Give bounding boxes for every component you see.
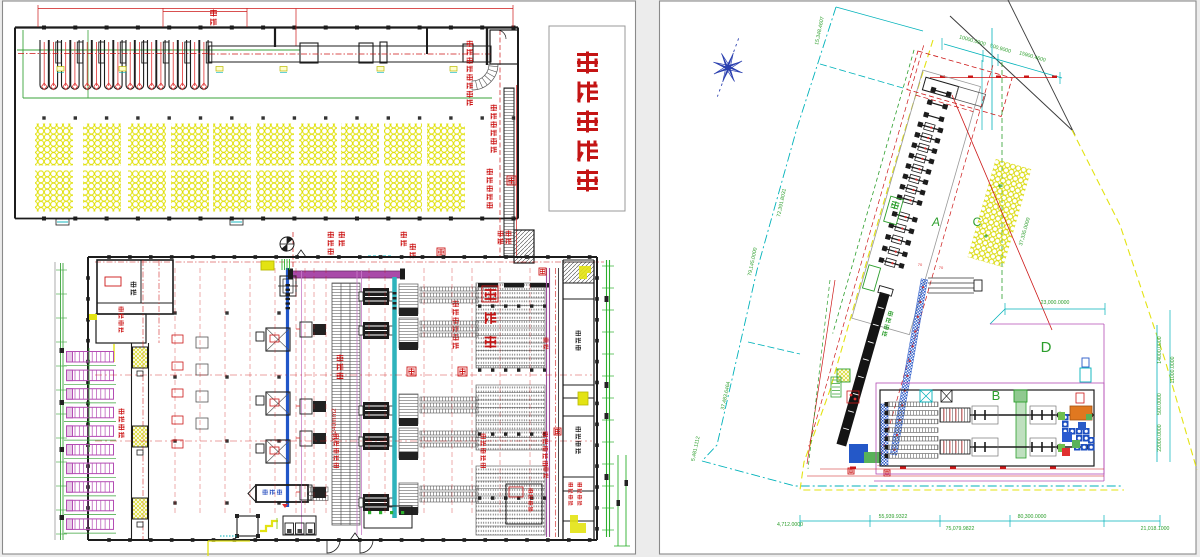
svg-text:70: 70: [939, 265, 944, 270]
svg-text:14000.0000: 14000.0000: [1157, 336, 1163, 364]
svg-text:23,000.0000: 23,000.0000: [1041, 300, 1070, 306]
svg-text:21,018.1000: 21,018.1000: [1141, 526, 1170, 532]
svg-text:80,300.0000: 80,300.0000: [1018, 514, 1047, 520]
svg-text:70: 70: [918, 262, 923, 267]
svg-text:55,939.9322: 55,939.9322: [879, 514, 908, 520]
svg-text:11000.0000: 11000.0000: [1170, 356, 1176, 383]
svg-text:22000.0000: 22000.0000: [1157, 424, 1163, 452]
svg-text:D: D: [1041, 339, 1052, 356]
svg-text:75,079.9822: 75,079.9822: [946, 526, 975, 532]
svg-text:4,712.0000: 4,712.0000: [777, 522, 803, 528]
svg-text:A: A: [931, 215, 940, 229]
svg-text:500.0000: 500.0000: [1157, 393, 1163, 415]
svg-text:C: C: [973, 215, 982, 229]
